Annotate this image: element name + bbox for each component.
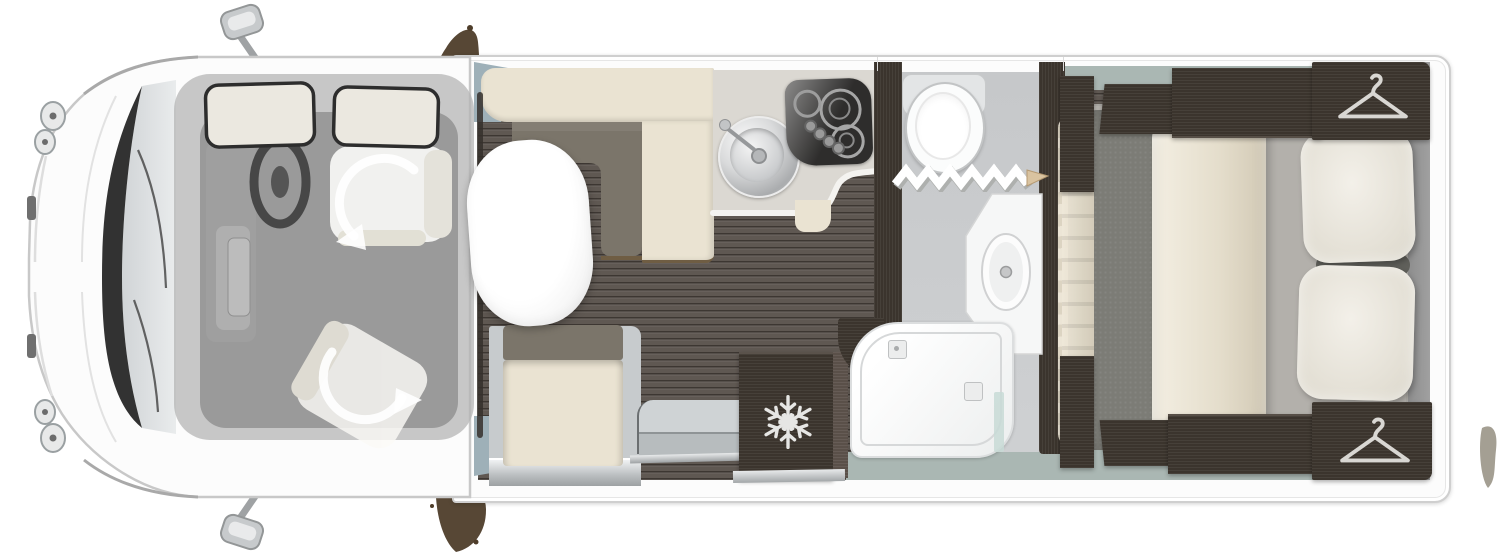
dining-table bbox=[463, 136, 598, 330]
bed-surround-step-bottom-left bbox=[1060, 356, 1094, 468]
steering-hub bbox=[271, 166, 289, 198]
kitchen-hob bbox=[785, 78, 874, 167]
fridge-side-panel bbox=[833, 352, 848, 478]
shower-tray bbox=[850, 322, 1014, 458]
right-wing-mirror bbox=[219, 492, 266, 551]
fridge-sill bbox=[733, 469, 845, 483]
wardrobe-bottom bbox=[1312, 402, 1432, 480]
headrest-pillow-left bbox=[205, 83, 315, 148]
wardrobe-top bbox=[1312, 62, 1430, 140]
shower-glass-screen bbox=[994, 392, 1004, 452]
left-wing-mirror bbox=[219, 3, 266, 62]
dinette-bench-backrest-top bbox=[481, 68, 714, 122]
concertina-door bbox=[892, 162, 1054, 192]
hanger-icon bbox=[1334, 72, 1412, 130]
wall-joint bbox=[877, 57, 878, 71]
basin-drain bbox=[1001, 267, 1012, 278]
driver-cab bbox=[0, 0, 492, 554]
motorhome-floorplan bbox=[0, 0, 1500, 554]
toilet bbox=[900, 72, 986, 172]
travel-seat-cushion bbox=[503, 360, 623, 466]
bed-blanket bbox=[1152, 108, 1266, 450]
wall-joint bbox=[1063, 57, 1064, 71]
grille-mark-bottom bbox=[27, 334, 36, 358]
bed-surround-locker-top bbox=[1172, 68, 1322, 138]
bed-pillow-lower bbox=[1296, 265, 1415, 402]
mud-smudge-right bbox=[1478, 420, 1500, 490]
hanger-icon bbox=[1336, 416, 1414, 474]
grille-mark-top bbox=[27, 196, 36, 220]
shower-fitting-2 bbox=[964, 382, 983, 401]
bed-pillow-upper bbox=[1300, 128, 1417, 264]
kitchen-tap-base bbox=[719, 119, 731, 131]
shower-drain-dot bbox=[894, 346, 899, 351]
dashboard bbox=[206, 142, 256, 342]
bed-surround-step-top-left bbox=[1060, 76, 1094, 192]
bed-surround-locker-bottom bbox=[1168, 414, 1322, 474]
toilet-seat bbox=[915, 92, 971, 160]
fridge bbox=[739, 352, 833, 480]
hob-burner-inner bbox=[828, 97, 851, 120]
washroom-wall-left bbox=[874, 62, 902, 342]
kitchen-shelf-sliver bbox=[795, 200, 831, 232]
door-pull bbox=[1027, 170, 1048, 186]
headrest-pillow-right bbox=[333, 87, 438, 148]
shower-drain-fitting bbox=[888, 340, 907, 359]
snowflake-icon bbox=[758, 392, 818, 452]
travel-seat-headrest bbox=[503, 325, 623, 360]
